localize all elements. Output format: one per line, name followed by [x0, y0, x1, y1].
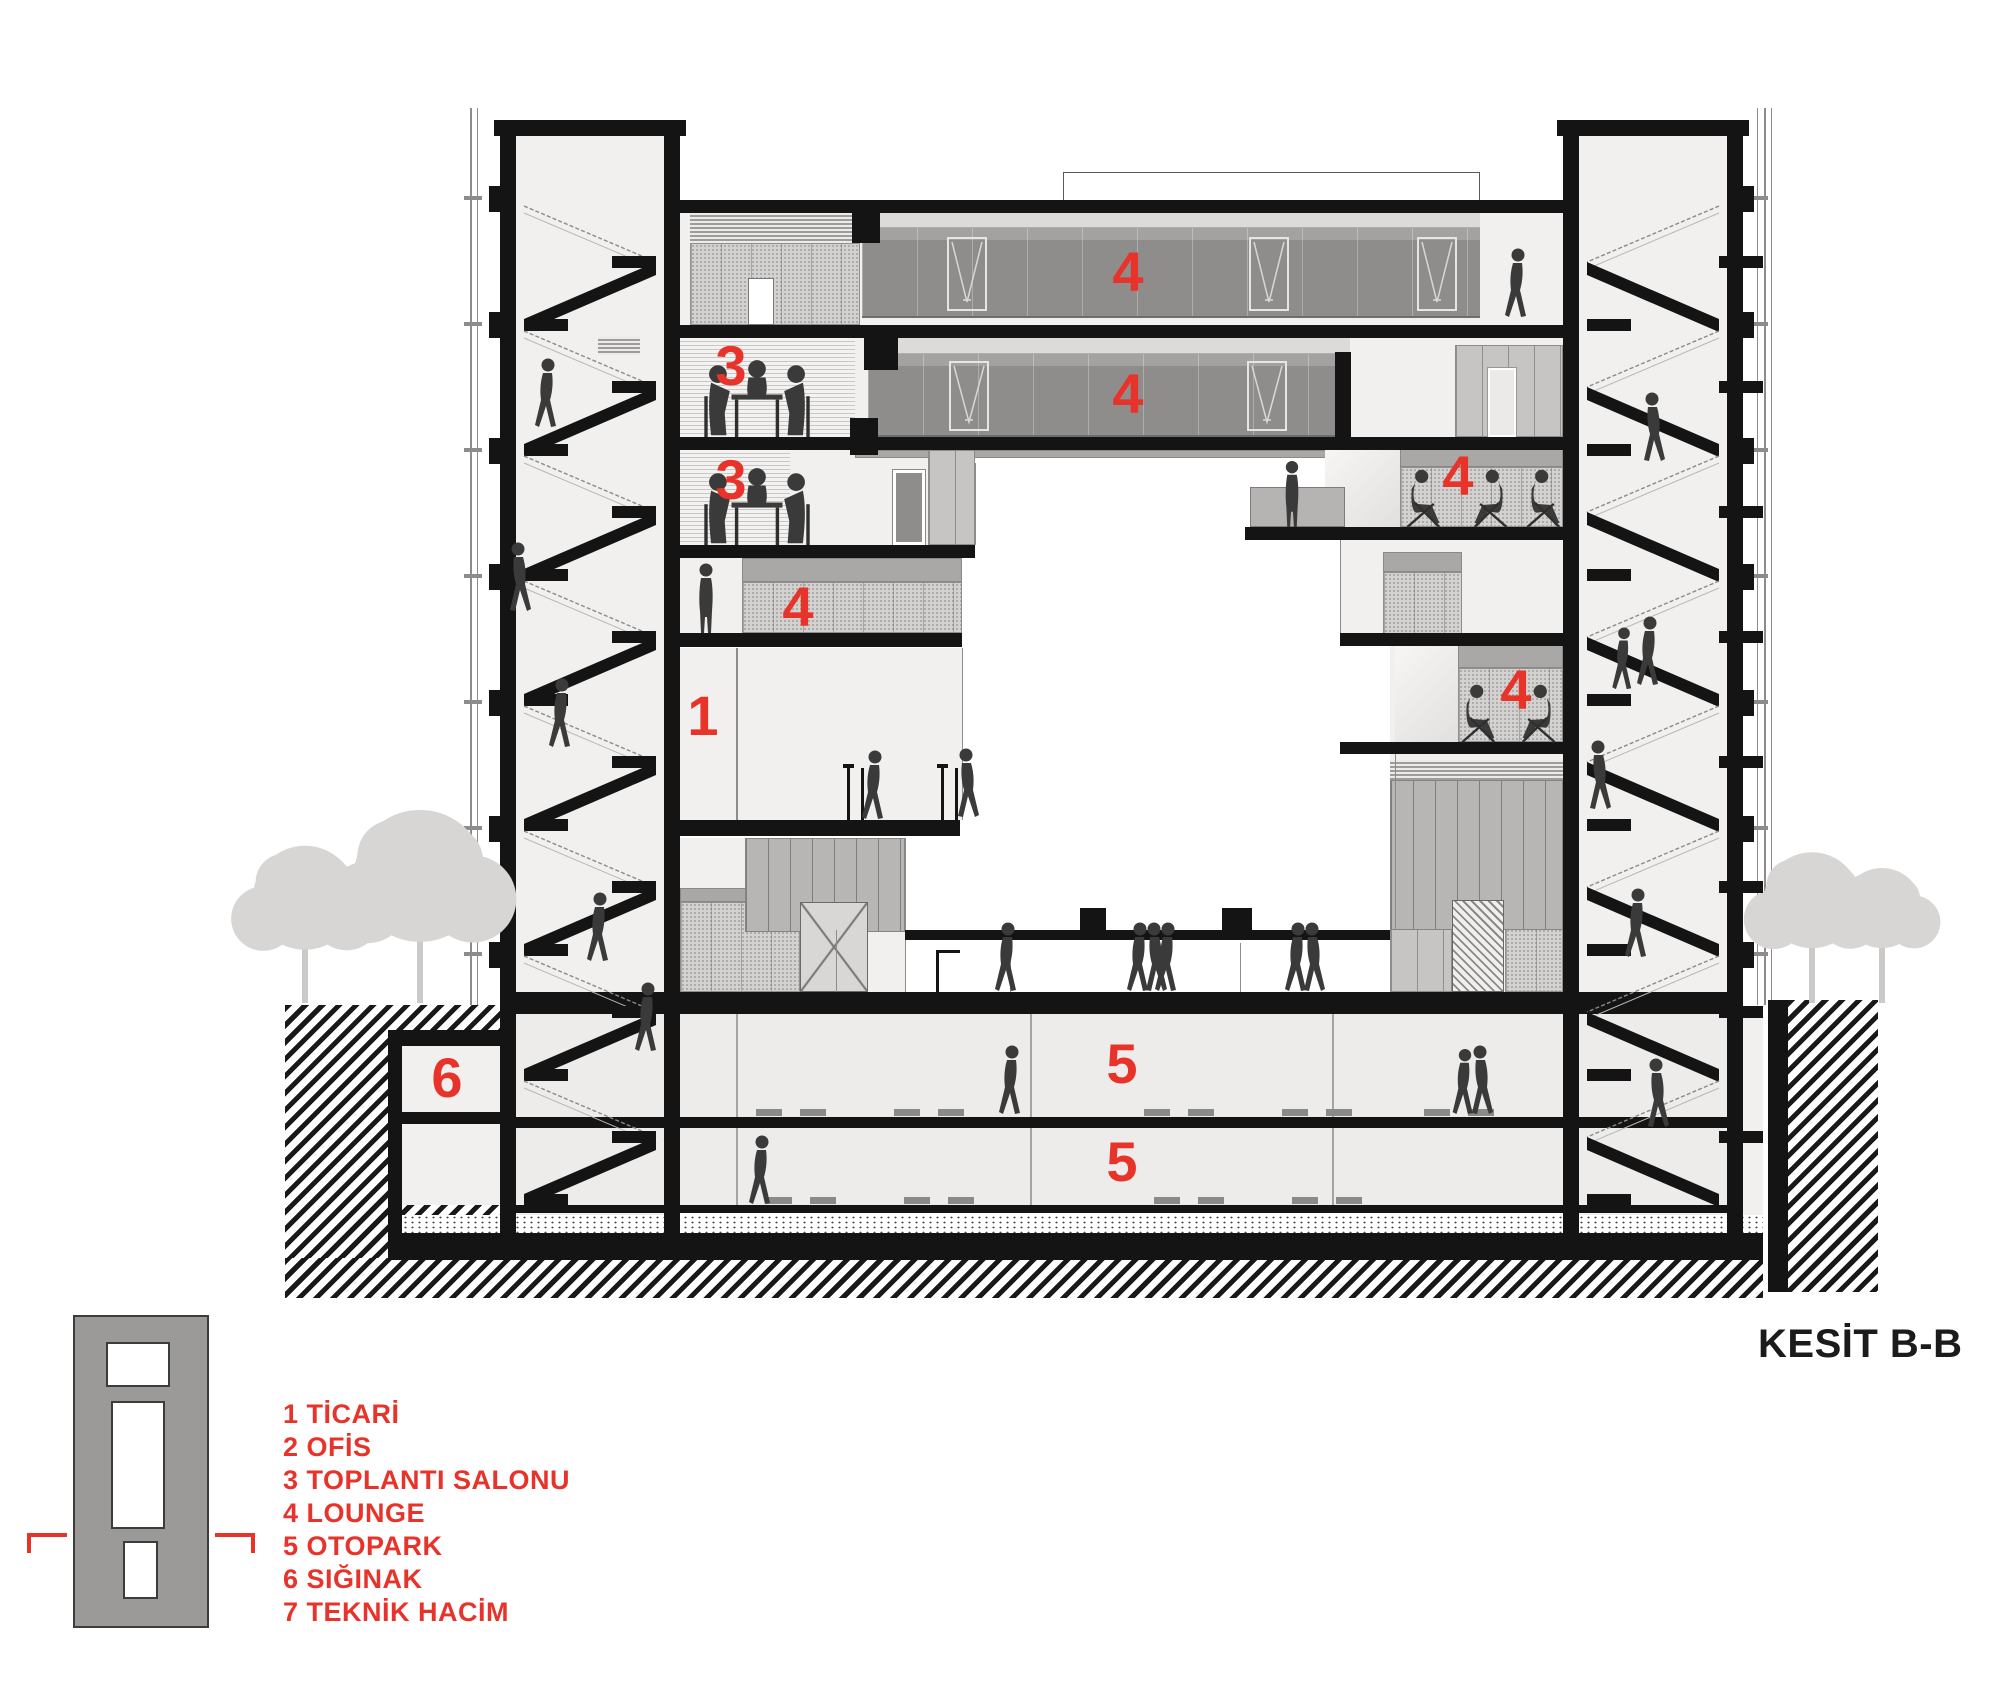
louvre-band	[598, 337, 640, 355]
glazing-head-band	[1383, 552, 1462, 572]
section-drawing-canvas: 43434414655 1 TİCARİ2 OFİS3 TOPLANTI SAL…	[0, 0, 2000, 1687]
wall-plate	[489, 186, 503, 212]
louvre-band	[690, 213, 860, 243]
facade-tick	[464, 700, 482, 704]
structure	[843, 764, 854, 768]
structure	[1340, 633, 1563, 646]
edge-line	[962, 648, 963, 820]
car-stop	[1336, 1197, 1362, 1204]
facade-line	[470, 108, 472, 1005]
balcony-railing	[1250, 487, 1345, 527]
legend-item: 7 TEKNİK HACİM	[283, 1596, 570, 1629]
legend-item: 3 TOPLANTI SALONU	[283, 1464, 570, 1497]
glazed-panel	[1400, 467, 1563, 527]
edge-line	[1340, 540, 1341, 633]
wall-plate	[489, 312, 503, 338]
wall-plate	[1740, 438, 1754, 464]
facade-line	[1764, 108, 1766, 1005]
door	[1488, 368, 1516, 437]
double-door	[800, 902, 868, 992]
structure	[905, 930, 1390, 940]
structure	[494, 120, 686, 136]
room-number-label: 4	[1112, 366, 1143, 422]
structure	[1080, 908, 1106, 930]
edge-line	[836, 930, 837, 992]
earth-hatch	[1788, 1000, 1878, 1292]
structure	[1727, 136, 1743, 1233]
car-stop	[1326, 1109, 1352, 1116]
car-stop	[1292, 1197, 1318, 1204]
car-stop	[766, 1197, 792, 1204]
wall-plate	[1740, 690, 1754, 716]
car-stop	[1468, 1109, 1494, 1116]
room-number-label: 4	[1112, 244, 1143, 300]
louvered-door	[1452, 900, 1504, 992]
room-number-label: 6	[431, 1050, 462, 1106]
wall-plate	[489, 942, 503, 968]
room-number-label: 1	[687, 688, 718, 744]
room-number-label: 3	[715, 338, 746, 394]
structure	[500, 136, 516, 1233]
spandrel-strip	[862, 213, 1480, 228]
legend-item: 5 OTOPARK	[283, 1530, 570, 1563]
facade-tick	[464, 448, 482, 452]
facade-tick	[464, 952, 482, 956]
facade-tick	[464, 196, 482, 200]
facade-line	[1757, 108, 1758, 1005]
structure	[861, 768, 864, 820]
car-stop	[904, 1197, 930, 1204]
structure	[388, 1046, 402, 1233]
structure	[516, 1205, 1727, 1213]
section-cut-mark-right	[215, 1533, 255, 1553]
car-stop	[894, 1109, 920, 1116]
louvre-band	[1390, 760, 1563, 780]
car-stop	[800, 1109, 826, 1116]
legend-item: 1 TİCARİ	[283, 1398, 570, 1431]
wall-plate	[1740, 564, 1754, 590]
facade-tick	[464, 322, 482, 326]
structure	[937, 764, 948, 768]
structure	[680, 820, 960, 836]
wall-plate	[489, 564, 503, 590]
glazed-panel	[690, 243, 860, 325]
room-number-label: 4	[782, 579, 813, 635]
structure	[850, 418, 878, 455]
car-stop	[1154, 1197, 1180, 1204]
structure	[1245, 527, 1563, 540]
door	[893, 470, 925, 545]
wall-plate	[489, 816, 503, 842]
facade-tick	[464, 574, 482, 578]
room-number-label: 4	[1442, 448, 1473, 504]
structure	[388, 1112, 516, 1124]
structure	[864, 338, 898, 370]
structure	[1563, 136, 1579, 1233]
interior-space	[1743, 1010, 1763, 1233]
structure	[1340, 742, 1563, 754]
wall-panel	[928, 450, 975, 545]
wall-plate	[1740, 816, 1754, 842]
structure	[941, 768, 944, 820]
structure	[680, 437, 1563, 450]
structure	[936, 950, 960, 953]
edge-line	[975, 463, 976, 545]
structure	[680, 633, 962, 647]
edge-line	[905, 838, 906, 992]
wall-plate	[489, 690, 503, 716]
door	[748, 278, 774, 325]
key-plan-cutout-top	[106, 1342, 170, 1387]
car-stop	[1188, 1109, 1214, 1116]
glazed-panel	[1383, 572, 1462, 640]
curtain-wall-band	[868, 354, 1350, 437]
legend-item: 2 OFİS	[283, 1431, 570, 1464]
interior-space	[402, 1124, 500, 1205]
structure	[680, 325, 1563, 338]
structure	[955, 768, 958, 820]
structure	[664, 136, 680, 1233]
structure	[852, 213, 880, 243]
legend-item: 6 SIĞINAK	[283, 1563, 570, 1596]
earth-hatch	[285, 1258, 1763, 1298]
structure	[680, 200, 1563, 213]
structure	[847, 768, 850, 820]
glazing-head-band	[742, 558, 962, 582]
room-number-label: 5	[1106, 1134, 1137, 1190]
wall-plate	[1740, 186, 1754, 212]
meeting-room-blinds	[680, 338, 855, 437]
structure	[1335, 352, 1351, 437]
glazed-panel	[742, 582, 962, 633]
foundation-gravel	[402, 1215, 1763, 1233]
car-stop	[1198, 1197, 1224, 1204]
structure	[1222, 908, 1252, 930]
key-plan-cutout-bottom	[123, 1541, 158, 1599]
facade-line	[477, 108, 478, 1005]
light-shade	[1395, 645, 1458, 742]
parking-column	[1030, 1014, 1032, 1205]
curtain-wall-band	[862, 228, 1480, 318]
wall-plate	[1740, 942, 1754, 968]
structure	[516, 992, 1727, 1014]
car-stop	[948, 1197, 974, 1204]
car-stop	[1144, 1109, 1170, 1116]
car-stop	[938, 1109, 964, 1116]
car-stop	[1424, 1109, 1450, 1116]
room-number-label: 4	[1500, 662, 1531, 718]
key-plan	[73, 1315, 209, 1628]
structure	[680, 545, 975, 558]
car-stop	[756, 1109, 782, 1116]
facade-tick	[464, 826, 482, 830]
structure	[1768, 1000, 1788, 1292]
room-number-label: 3	[715, 452, 746, 508]
section-cut-mark-left	[27, 1533, 67, 1553]
spandrel-strip	[868, 338, 1350, 354]
wall-plate	[489, 438, 503, 464]
structure	[936, 950, 939, 992]
legend-item: 4 LOUNGE	[283, 1497, 570, 1530]
car-stop	[810, 1197, 836, 1204]
drawing-title: KESİT B-B	[1758, 1322, 1963, 1367]
edge-line	[1240, 943, 1241, 992]
parking-column	[736, 1014, 738, 1205]
interior-space	[680, 648, 962, 820]
structure	[1557, 120, 1749, 136]
structure	[388, 1030, 516, 1046]
room-number-label: 5	[1106, 1036, 1137, 1092]
roof-parapet	[1063, 172, 1480, 200]
structure	[516, 1117, 1727, 1128]
car-stop	[1282, 1109, 1308, 1116]
legend: 1 TİCARİ2 OFİS3 TOPLANTI SALONU4 LOUNGE5…	[283, 1398, 570, 1629]
edge-line	[736, 648, 738, 820]
edge-line	[1010, 943, 1011, 992]
edge-line	[1395, 754, 1396, 930]
wall-plate	[1740, 312, 1754, 338]
structure	[388, 1233, 1763, 1260]
key-plan-cutout-middle	[111, 1401, 165, 1529]
